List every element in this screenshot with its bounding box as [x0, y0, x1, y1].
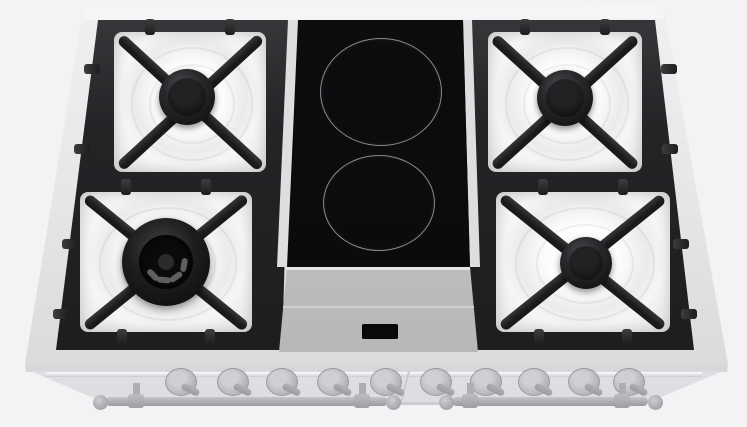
left-door-handle-sleeve: [128, 394, 144, 408]
control-knob: [317, 368, 349, 396]
control-knob: [470, 368, 502, 396]
control-knob: [568, 368, 600, 396]
left-door-handle-ball: [386, 395, 401, 410]
control-knob: [370, 368, 402, 396]
right-door-handle-ball: [439, 395, 454, 410]
control-knob: [217, 368, 249, 396]
front-bottom-line: [0, 0, 747, 427]
right-door-handle-ball: [648, 395, 663, 410]
control-knob: [266, 368, 298, 396]
left-door-handle-bar: [106, 397, 388, 406]
left-door-handle-sleeve: [354, 394, 370, 408]
oven-front-face: [0, 0, 747, 427]
control-knob: [165, 368, 197, 396]
control-knob: [420, 368, 452, 396]
range-cooktop-render: [0, 0, 747, 427]
right-door-handle-sleeve: [462, 394, 478, 408]
right-door-handle-sleeve: [614, 394, 630, 408]
front-panel-group: [0, 0, 747, 427]
control-knob: [518, 368, 550, 396]
left-door-handle-ball: [93, 395, 108, 410]
